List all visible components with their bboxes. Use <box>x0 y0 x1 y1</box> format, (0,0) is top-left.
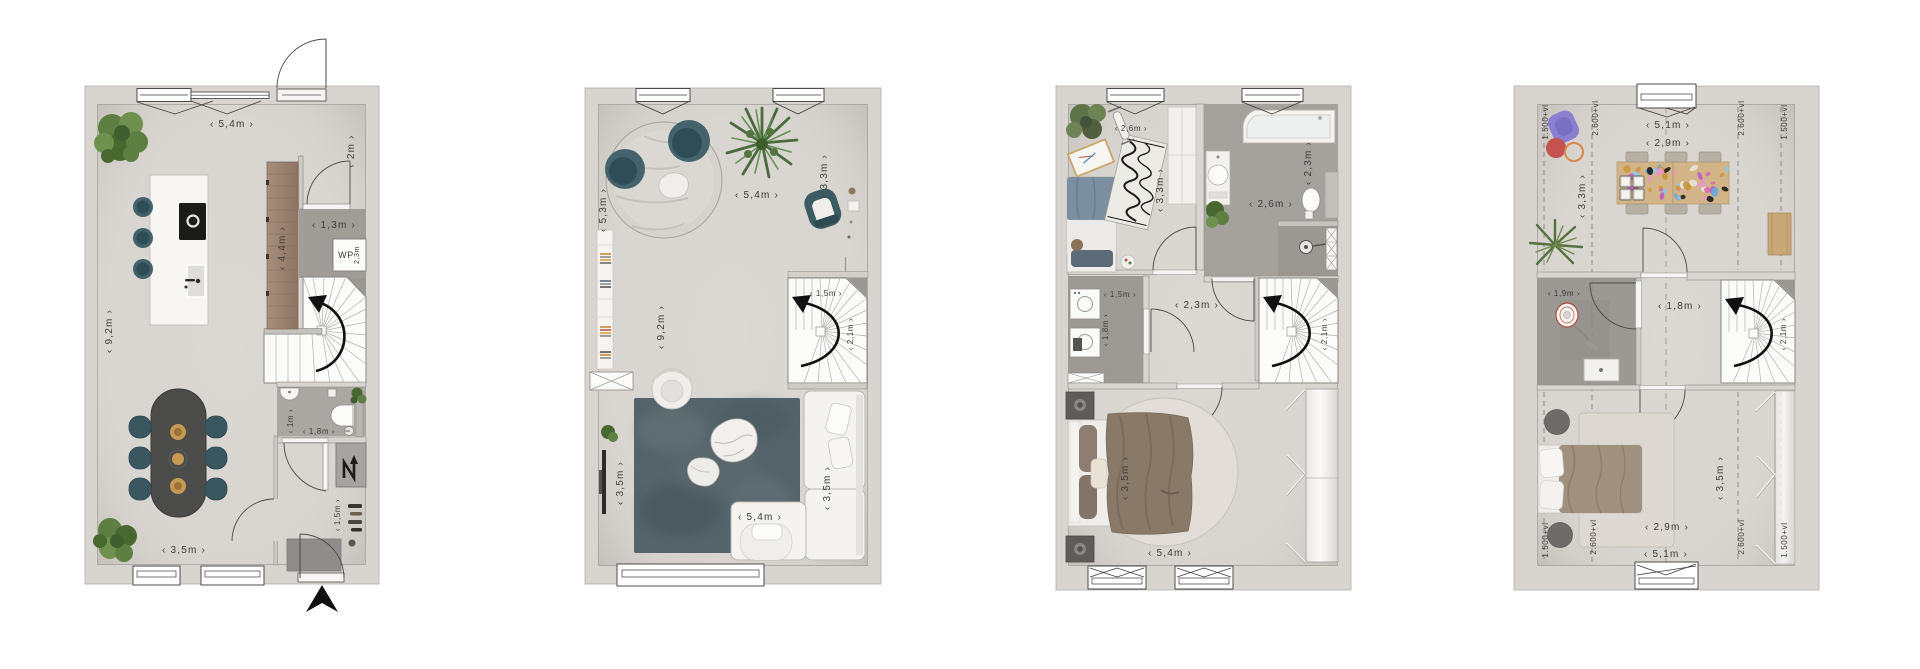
svg-text:2.600+vl: 2.600+vl <box>1737 100 1746 135</box>
svg-text:‹ 2m ›: ‹ 2m › <box>346 134 357 167</box>
svg-text:‹ 1,9m ›: ‹ 1,9m › <box>1548 289 1580 298</box>
svg-text:‹ 5,1m ›: ‹ 5,1m › <box>1644 549 1688 560</box>
svg-text:‹ 3,5m ›: ‹ 3,5m › <box>1715 456 1726 500</box>
svg-text:‹ 2,9m ›: ‹ 2,9m › <box>1645 522 1689 533</box>
svg-text:‹ 1,5m ›: ‹ 1,5m › <box>333 499 342 531</box>
svg-text:‹ 5,4m ›: ‹ 5,4m › <box>738 512 782 523</box>
svg-text:1.500+vl: 1.500+vl <box>1541 522 1550 557</box>
svg-text:‹ 2,6m ›: ‹ 2,6m › <box>1115 124 1147 133</box>
svg-text:‹ 5,4m ›: ‹ 5,4m › <box>210 119 254 130</box>
svg-text:‹ 1,8m ›: ‹ 1,8m › <box>1101 314 1110 346</box>
svg-text:‹ 1,8m ›: ‹ 1,8m › <box>1658 301 1702 312</box>
svg-text:1.500+vl: 1.500+vl <box>1541 104 1550 139</box>
svg-text:‹ 3,5m ›: ‹ 3,5m › <box>162 545 206 556</box>
svg-text:‹ 9,2m ›: ‹ 9,2m › <box>104 309 115 353</box>
svg-text:‹ 1,5m ›: ‹ 1,5m › <box>810 289 842 298</box>
svg-text:1.500+vl: 1.500+vl <box>1780 522 1789 557</box>
svg-text:‹ 2,6m ›: ‹ 2,6m › <box>1249 199 1293 210</box>
svg-text:‹ 5,4m ›: ‹ 5,4m › <box>1148 548 1192 559</box>
svg-text:‹ 3,5m ›: ‹ 3,5m › <box>1120 456 1131 500</box>
svg-text:‹ 3,3m ›: ‹ 3,3m › <box>819 154 830 198</box>
svg-text:‹ 1,3m ›: ‹ 1,3m › <box>312 220 356 231</box>
svg-text:‹ 2,1m ›: ‹ 2,1m › <box>846 318 855 350</box>
svg-text:‹ 5,3m ›: ‹ 5,3m › <box>598 188 609 232</box>
svg-text:‹ 1,8m ›: ‹ 1,8m › <box>303 427 335 436</box>
svg-text:‹ 2,1m ›: ‹ 2,1m › <box>1320 318 1329 350</box>
svg-text:‹ 5,1m ›: ‹ 5,1m › <box>1646 120 1690 131</box>
svg-text:‹ 1m ›: ‹ 1m › <box>286 409 295 434</box>
svg-text:2.600+vl: 2.600+vl <box>1589 519 1598 554</box>
svg-text:‹ 2,3m ›: ‹ 2,3m › <box>1303 141 1314 185</box>
svg-text:‹ 3,5m ›: ‹ 3,5m › <box>822 466 833 510</box>
svg-text:2.600+vl: 2.600+vl <box>1737 519 1746 554</box>
svg-text:‹ 3,3m ›: ‹ 3,3m › <box>1577 174 1588 218</box>
svg-text:‹ 3,5m ›: ‹ 3,5m › <box>615 461 626 505</box>
svg-text:‹ 2,3m ›: ‹ 2,3m › <box>1175 300 1219 311</box>
svg-text:‹ 4,4m ›: ‹ 4,4m › <box>277 226 288 270</box>
svg-text:‹ 5,4m ›: ‹ 5,4m › <box>735 190 779 201</box>
svg-text:2.600+vl: 2.600+vl <box>1591 100 1600 135</box>
svg-text:‹ 2,1m ›: ‹ 2,1m › <box>1779 318 1788 350</box>
svg-text:‹ 2,9m ›: ‹ 2,9m › <box>1646 138 1690 149</box>
svg-text:WP: WP <box>338 250 354 260</box>
svg-text:1.500+vl: 1.500+vl <box>1780 104 1789 139</box>
svg-text:‹ 9,2m ›: ‹ 9,2m › <box>656 305 667 349</box>
svg-text:2,3m: 2,3m <box>354 246 361 264</box>
svg-text:‹ 3,3m ›: ‹ 3,3m › <box>1155 168 1166 212</box>
svg-text:‹ 1,5m ›: ‹ 1,5m › <box>1104 290 1136 299</box>
